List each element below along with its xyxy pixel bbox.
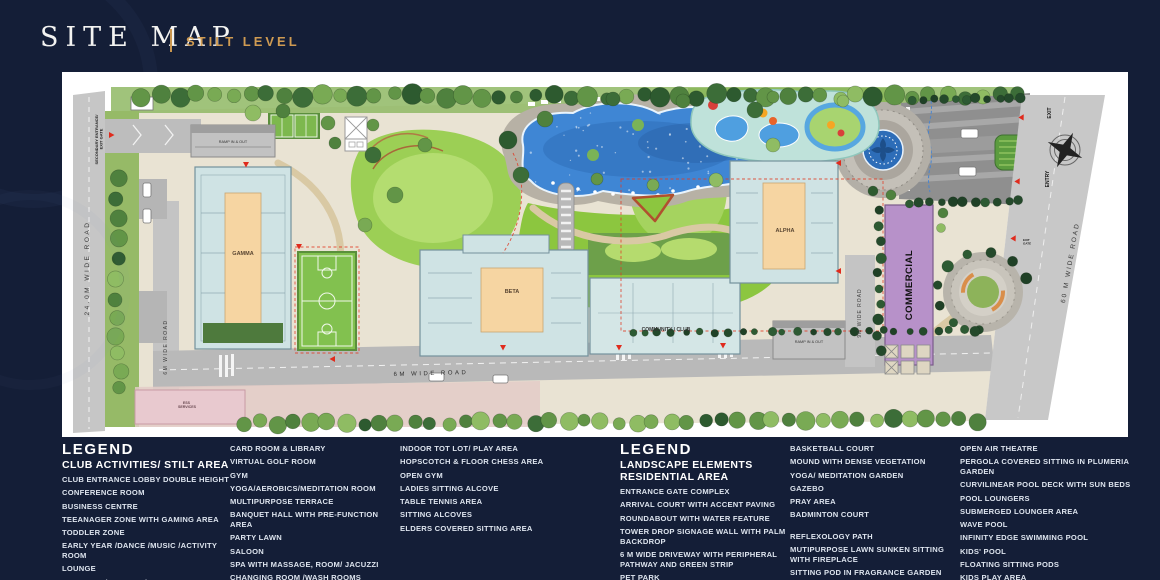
legend-club-list-2: CARD ROOM & LIBRARYVIRTUAL GOLF ROOMGYMY… — [230, 444, 402, 580]
legend-landscape-list-2: BASKETBALL COURTMOUND WITH DENSE VEGETAT… — [790, 444, 962, 580]
tennis-courts — [268, 113, 320, 139]
ramp1-label: RAMP IN & OUT — [219, 140, 248, 144]
legend-item: ROUNDABOUT WITH WATER FEATURE — [620, 514, 788, 524]
legend-item: TODDLER ZONE — [62, 528, 232, 538]
legend-item: GYM — [230, 471, 402, 481]
legend-item: WAVE POOL — [960, 520, 1135, 530]
legend-item: LOUNGE — [62, 564, 232, 574]
legend-item: INDOOR TOT LOT/ PLAY AREA — [400, 444, 580, 454]
site-plan-illustration: 24.0M WIDE ROAD SECONDARY ENTRANCE/ EXIT… — [73, 83, 1128, 437]
legend-item: KIDS PLAY AREA — [960, 573, 1135, 580]
legend-club-list-1: CLUB ENTRANCE LOBBY DOUBLE HEIGHTCONFERE… — [62, 475, 232, 580]
legend-item: FLOATING SITTING PODS — [960, 560, 1135, 570]
gate3-label: EXIT GATE — [1023, 238, 1031, 245]
legend-item: INFINITY EDGE SWIMMING POOL — [960, 533, 1135, 543]
legend-landscape-column-3: OPEN AIR THEATREPERGOLA COVERED SITTING … — [960, 444, 1135, 580]
legend-item: ARRIVAL COURT WITH ACCENT PAVING — [620, 500, 788, 510]
legend-item — [790, 524, 962, 529]
legend-item: CARD ROOM & LIBRARY — [230, 444, 402, 454]
legend-item: PARTY LAWN — [230, 533, 402, 543]
legend-item: TABLE TENNIS AREA — [400, 497, 580, 507]
legend-item: TOWER DROP SIGNAGE WALL WITH PALM BACKDR… — [620, 527, 788, 547]
legend-landscape-list-3: OPEN AIR THEATREPERGOLA COVERED SITTING … — [960, 444, 1135, 580]
commercial-label: COMMERCIAL — [904, 250, 915, 320]
legend-item: OPEN AIR THEATRE — [960, 444, 1135, 454]
legend-club-column-2: CARD ROOM & LIBRARYVIRTUAL GOLF ROOMGYMY… — [230, 444, 402, 580]
legend-item: PERGOLA COVERED SITTING IN PLUMERIA GARD… — [960, 457, 1135, 477]
tower-beta — [420, 235, 588, 356]
page-subtitle: STILT LEVEL — [186, 34, 300, 49]
community-club-label: COMMUNITY / CLUB — [642, 327, 691, 333]
legend-club-column-1: LEGEND CLUB ACTIVITIES/ STILT AREA CLUB … — [62, 441, 232, 580]
exit-label: EXIT — [1047, 107, 1053, 118]
legend-item: BADMINTON COURT — [790, 510, 962, 520]
road-label-9m: 9M WIDE ROAD — [857, 288, 863, 337]
gazebo-structure — [345, 117, 367, 151]
legend-item: PET PARK — [620, 573, 788, 580]
legend-item: LADIES SITTING ALCOVE — [400, 484, 580, 494]
legend-club-column-3: INDOOR TOT LOT/ PLAY AREAHOPSCOTCH & FLO… — [400, 444, 580, 537]
legend-item: CONFERENCE ROOM — [62, 488, 232, 498]
legend-item: BUSINESS CENTRE — [62, 502, 232, 512]
legend-item: CLUB ENTRANCE LOBBY DOUBLE HEIGHT — [62, 475, 232, 485]
ramp2-label: RAMP IN & OUT — [795, 340, 824, 344]
legend-landscape-list-1: ENTRANCE GATE COMPLEXARRIVAL COURT WITH … — [620, 487, 788, 580]
legend-item: EARLY YEAR /DANCE /MUSIC /ACTIVITY ROOM — [62, 541, 232, 561]
legend-item: TEEANAGER ZONE WITH GAMING AREA — [62, 515, 232, 525]
legend-item: CURVILINEAR POOL DECK WITH SUN BEDS — [960, 480, 1135, 490]
legend-item: ELDERS COVERED SITTING AREA — [400, 524, 580, 534]
legend-landscape-column-2: BASKETBALL COURTMOUND WITH DENSE VEGETAT… — [790, 444, 962, 580]
legend-item: MOUND WITH DENSE VEGETATION — [790, 457, 962, 467]
legend-club-subheading: CLUB ACTIVITIES/ STILT AREA — [62, 459, 232, 471]
legend-landscape-column-1: LEGEND LANDSCAPE ELEMENTS RESIDENTIAL AR… — [620, 441, 788, 580]
legend-item: VIRTUAL GOLF ROOM — [230, 457, 402, 467]
legend-landscape-subheading-1: LANDSCAPE ELEMENTS — [620, 459, 788, 471]
legend-club-heading: LEGEND — [62, 441, 232, 458]
gamma-tower-label: GAMMA — [232, 251, 253, 257]
legend-landscape-subheading-2: RESIDENTIAL AREA — [620, 471, 788, 483]
legend-item: MULTIPURPOSE TERRACE — [230, 497, 402, 507]
road-label-24m: 24.0M WIDE ROAD — [84, 221, 91, 316]
legend-item: YOGA/ MEDITATION GARDEN — [790, 471, 962, 481]
community-club-building — [590, 278, 740, 354]
alpha-tower-label: ALPHA — [776, 228, 795, 234]
legend-item: BASKETBALL COURT — [790, 444, 962, 454]
legend-item: PRAY AREA — [790, 497, 962, 507]
legend-item: SPA WITH MASSAGE, ROOM/ JACUZZI — [230, 560, 402, 570]
legend-item: POOL LOUNGERS — [960, 494, 1135, 504]
beta-tower-label: BETA — [505, 289, 520, 295]
legend-item: BANQUET HALL WITH PRE-FUNCTION AREA — [230, 510, 402, 530]
legend-item: HOPSCOTCH & FLOOR CHESS AREA — [400, 457, 580, 467]
title-divider — [170, 29, 172, 52]
legend-item: OPEN GYM — [400, 471, 580, 481]
legend-item: ENTRANCE GATE COMPLEX — [620, 487, 788, 497]
legend-club-list-3: INDOOR TOT LOT/ PLAY AREAHOPSCOTCH & FLO… — [400, 444, 580, 533]
legend-item: CHANGING ROOM /WASH ROOMS — [230, 573, 402, 580]
legend-item: SITTING ALCOVES — [400, 510, 580, 520]
legend-item: REFLEXOLOGY PATH — [790, 532, 962, 542]
legend-landscape-heading: LEGEND — [620, 441, 788, 458]
entry-label: ENTRY — [1045, 170, 1051, 187]
legend-item: 6 M WIDE DRIVEWAY WITH PERIPHERAL PATHWA… — [620, 550, 788, 570]
legend-item: SALOON — [230, 547, 402, 557]
legend-item: KIDS' POOL — [960, 547, 1135, 557]
basketball-court — [298, 252, 356, 350]
legend-item: SITTING POD IN FRAGRANCE GARDEN — [790, 568, 962, 578]
site-map-page: SITE MAP STILT LEVEL — [0, 0, 1160, 580]
legend-item: SUBMERGED LOUNGER AREA — [960, 507, 1135, 517]
left-green-verge — [105, 111, 139, 427]
legend-item: MUTIPURPOSE LAWN SUNKEN SITTING WITH FIR… — [790, 545, 962, 565]
legend-item: GAZEBO — [790, 484, 962, 494]
road-label-6m-vertical: 6M WIDE ROAD — [163, 319, 169, 374]
tower-gamma — [195, 167, 291, 349]
legend-item: YOGA/AEROBICS/MEDITATION ROOM — [230, 484, 402, 494]
